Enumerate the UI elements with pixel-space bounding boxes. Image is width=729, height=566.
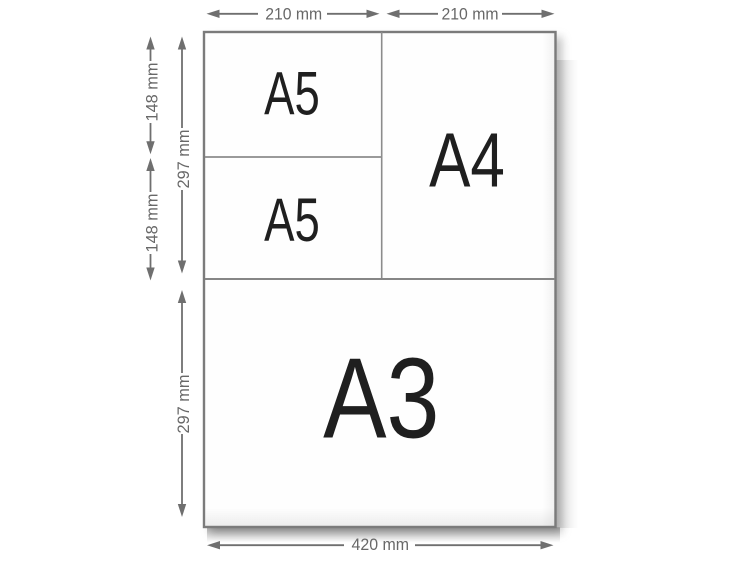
svg-text:A3: A3: [323, 335, 439, 463]
svg-text:A5: A5: [264, 186, 320, 255]
svg-text:148 mm: 148 mm: [144, 194, 162, 253]
svg-text:210 mm: 210 mm: [265, 6, 322, 24]
svg-text:A4: A4: [429, 118, 505, 204]
svg-text:A5: A5: [264, 60, 320, 129]
svg-text:297 mm: 297 mm: [175, 375, 193, 434]
svg-text:420 mm: 420 mm: [352, 536, 410, 554]
svg-text:148 mm: 148 mm: [144, 63, 162, 122]
svg-text:210 mm: 210 mm: [442, 6, 499, 24]
svg-text:297 mm: 297 mm: [175, 130, 193, 189]
